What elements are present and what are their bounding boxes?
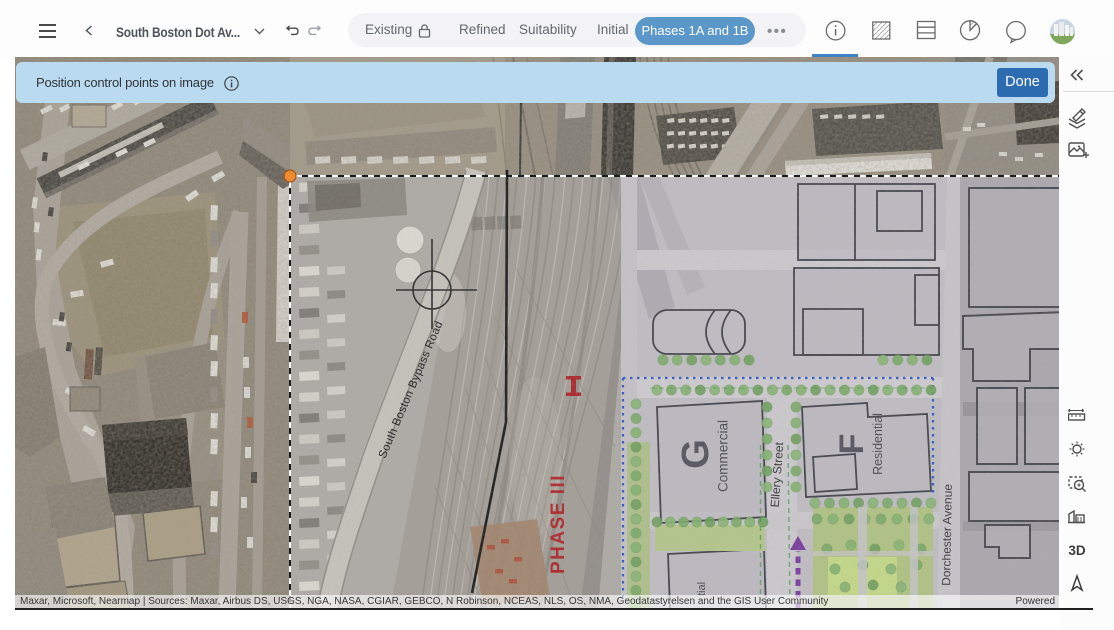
- svg-text:3D: 3D: [1068, 543, 1086, 558]
